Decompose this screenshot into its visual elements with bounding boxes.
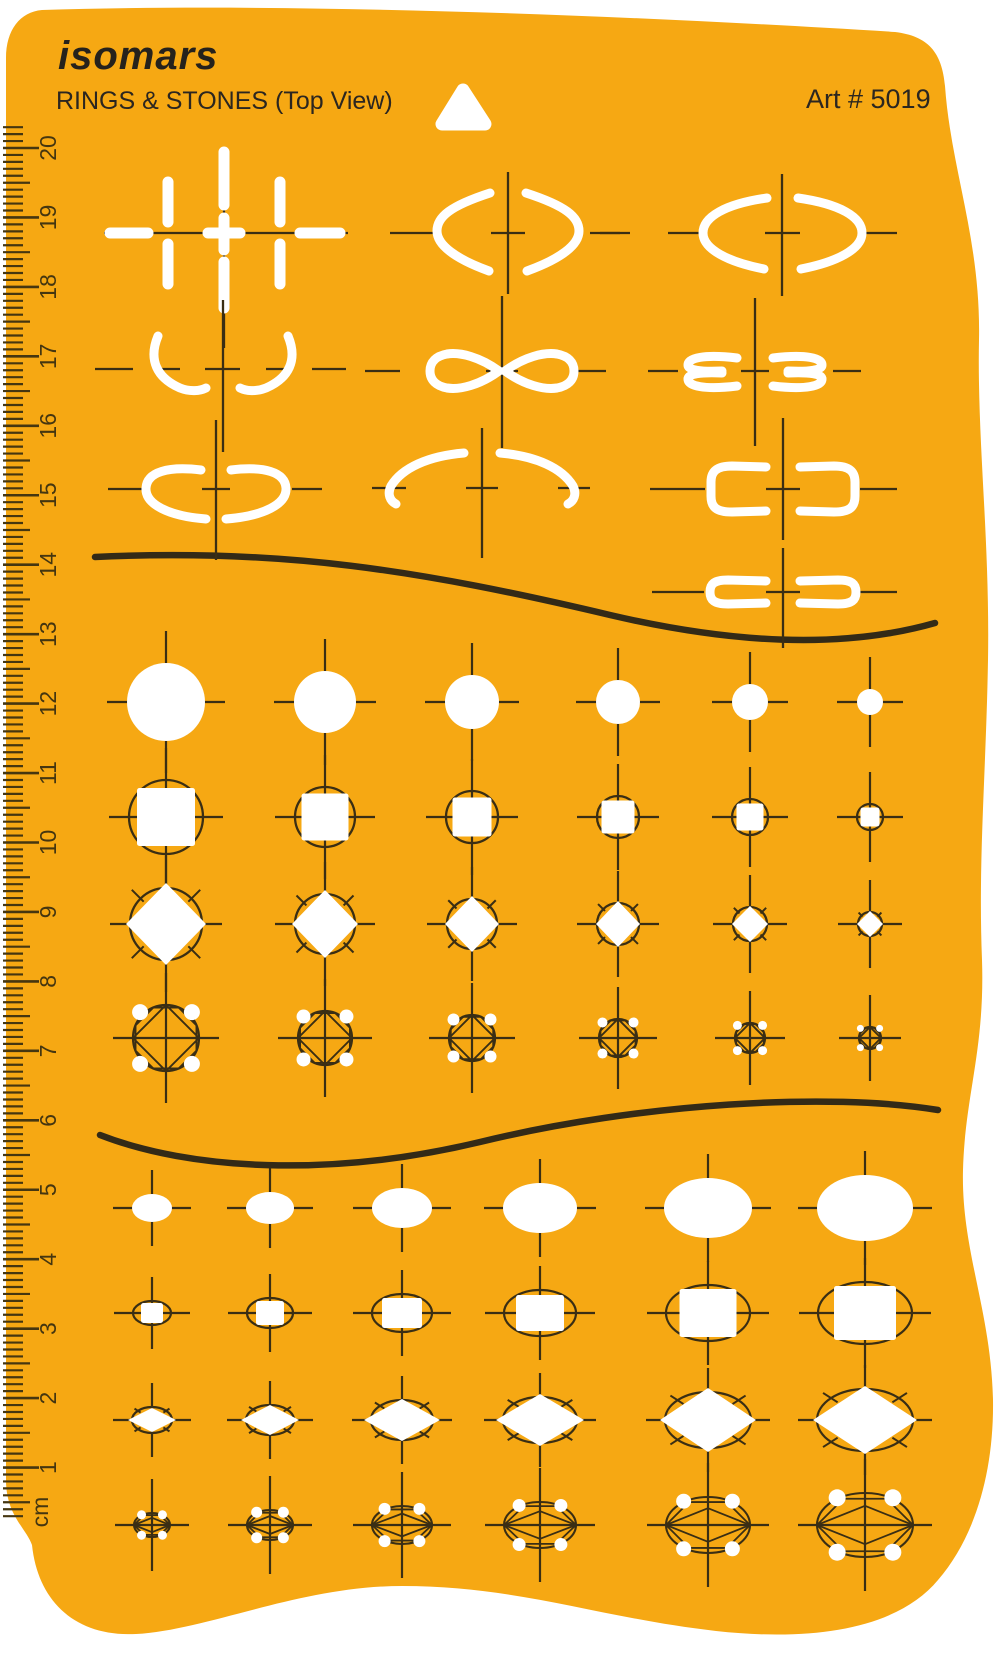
ruler-number: 19 [35,205,61,231]
oval-cutout [372,1188,432,1228]
square-cutout [602,801,635,834]
prong-dot [448,1014,460,1026]
prong-dot [379,1535,391,1547]
prong-dot [829,1489,846,1506]
prong-dot [629,1017,639,1027]
prong-dot [297,1052,311,1066]
prong-dot [597,1049,607,1059]
ruler-unit-label: cm [27,1497,53,1528]
ruler-number: 7 [35,1044,61,1057]
oval-cutout [246,1192,294,1224]
ruler-number: 17 [35,344,61,370]
brand-logo: isomars [58,34,218,79]
prong-dot [733,1021,742,1030]
round-cutout [732,684,768,720]
prong-dot [379,1503,391,1515]
ruler-number: 12 [35,691,61,717]
ruler-number: 3 [35,1322,61,1335]
prong-dot [676,1494,691,1509]
oval-cutout [664,1178,752,1238]
ruler-number: 6 [35,1114,61,1127]
ruler-number: 16 [35,413,61,439]
prong-dot [629,1049,639,1059]
ruler-number: 20 [35,135,61,161]
square-cutout [256,1301,284,1325]
prong-dot [554,1499,567,1512]
ruler-number: 11 [35,761,61,785]
ruler-number: 2 [35,1392,61,1405]
round-cutout [857,689,883,715]
square-cutout [680,1289,737,1337]
ruler-number: 14 [35,552,61,578]
prong-dot [132,1004,148,1020]
square-cutout [453,798,492,837]
oval-cutout [503,1183,577,1233]
prong-dot [278,1532,289,1543]
prong-dot [725,1494,740,1509]
square-cutout [516,1295,564,1331]
prong-dot [758,1046,767,1055]
prong-dot [857,1044,864,1051]
stencil-graphic: 2019181716151413121110987654321cm [0,0,1000,1662]
prong-dot [485,1014,497,1026]
prong-dot [876,1044,883,1051]
prong-dot [448,1051,460,1063]
oval-cutout [817,1175,913,1241]
ruler-number: 18 [35,274,61,300]
square-cutout [834,1286,896,1340]
oval-cutout [132,1194,172,1222]
round-cutout [127,663,205,741]
prong-dot [413,1503,425,1515]
prong-dot [884,1544,901,1561]
prong-dot [513,1499,526,1512]
prong-dot [597,1017,607,1027]
square-cutout [382,1298,422,1328]
ruler-number: 13 [35,621,61,647]
square-cutout [141,1303,163,1323]
stencil-template: 2019181716151413121110987654321cm isomar… [0,0,1000,1662]
prong-dot [158,1510,167,1519]
prong-dot [725,1541,740,1556]
prong-dot [339,1052,353,1066]
prong-dot [184,1004,200,1020]
prong-dot [184,1056,200,1072]
round-cutout [294,671,356,733]
prong-dot [137,1510,146,1519]
ruler-number: 15 [35,482,61,508]
prong-dot [251,1507,262,1518]
ruler-number: 1 [35,1461,61,1474]
template-title: RINGS & STONES (Top View) [56,87,393,116]
prong-dot [158,1531,167,1540]
prong-dot [413,1535,425,1547]
prong-dot [485,1051,497,1063]
prong-dot [876,1025,883,1032]
prong-dot [733,1046,742,1055]
prong-dot [758,1021,767,1030]
ruler-number: 8 [35,975,61,988]
prong-dot [339,1010,353,1024]
prong-dot [676,1541,691,1556]
round-cutout [596,680,640,724]
prong-dot [137,1531,146,1540]
prong-dot [513,1538,526,1551]
square-cutout [737,804,764,831]
prong-dot [132,1056,148,1072]
prong-dot [297,1010,311,1024]
square-cutout [137,788,195,846]
ruler-number: 5 [35,1183,61,1196]
prong-dot [829,1544,846,1561]
square-cutout [302,794,349,841]
ruler-number: 10 [35,830,61,856]
ruler-number: 9 [35,906,61,919]
round-cutout [445,675,499,729]
art-number: Art # 5019 [806,84,931,115]
prong-dot [251,1532,262,1543]
prong-dot [884,1489,901,1506]
prong-dot [554,1538,567,1551]
square-cutout [861,808,880,827]
prong-dot [857,1025,864,1032]
prong-dot [278,1507,289,1518]
ruler-number: 4 [35,1253,61,1266]
